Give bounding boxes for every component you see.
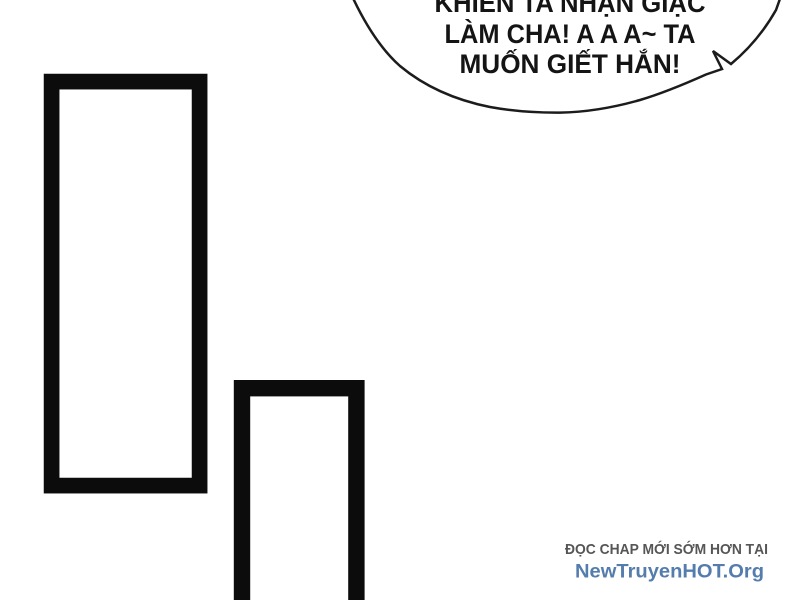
svg-text:MUỐN GIẾT HẮN!: MUỐN GIẾT HẮN! bbox=[460, 47, 681, 79]
svg-text:KHIẾN TA NHẬN GIẶC: KHIẾN TA NHẬN GIẶC bbox=[435, 0, 706, 18]
svg-text:ĐỌC CHAP MỚI SỚM HƠN TẠI: ĐỌC CHAP MỚI SỚM HƠN TẠI bbox=[565, 540, 768, 558]
svg-text:NewTruyenHOT.Org: NewTruyenHOT.Org bbox=[575, 562, 764, 583]
svg-text:LÀM CHA! A A A~ TA: LÀM CHA! A A A~ TA bbox=[445, 18, 696, 49]
